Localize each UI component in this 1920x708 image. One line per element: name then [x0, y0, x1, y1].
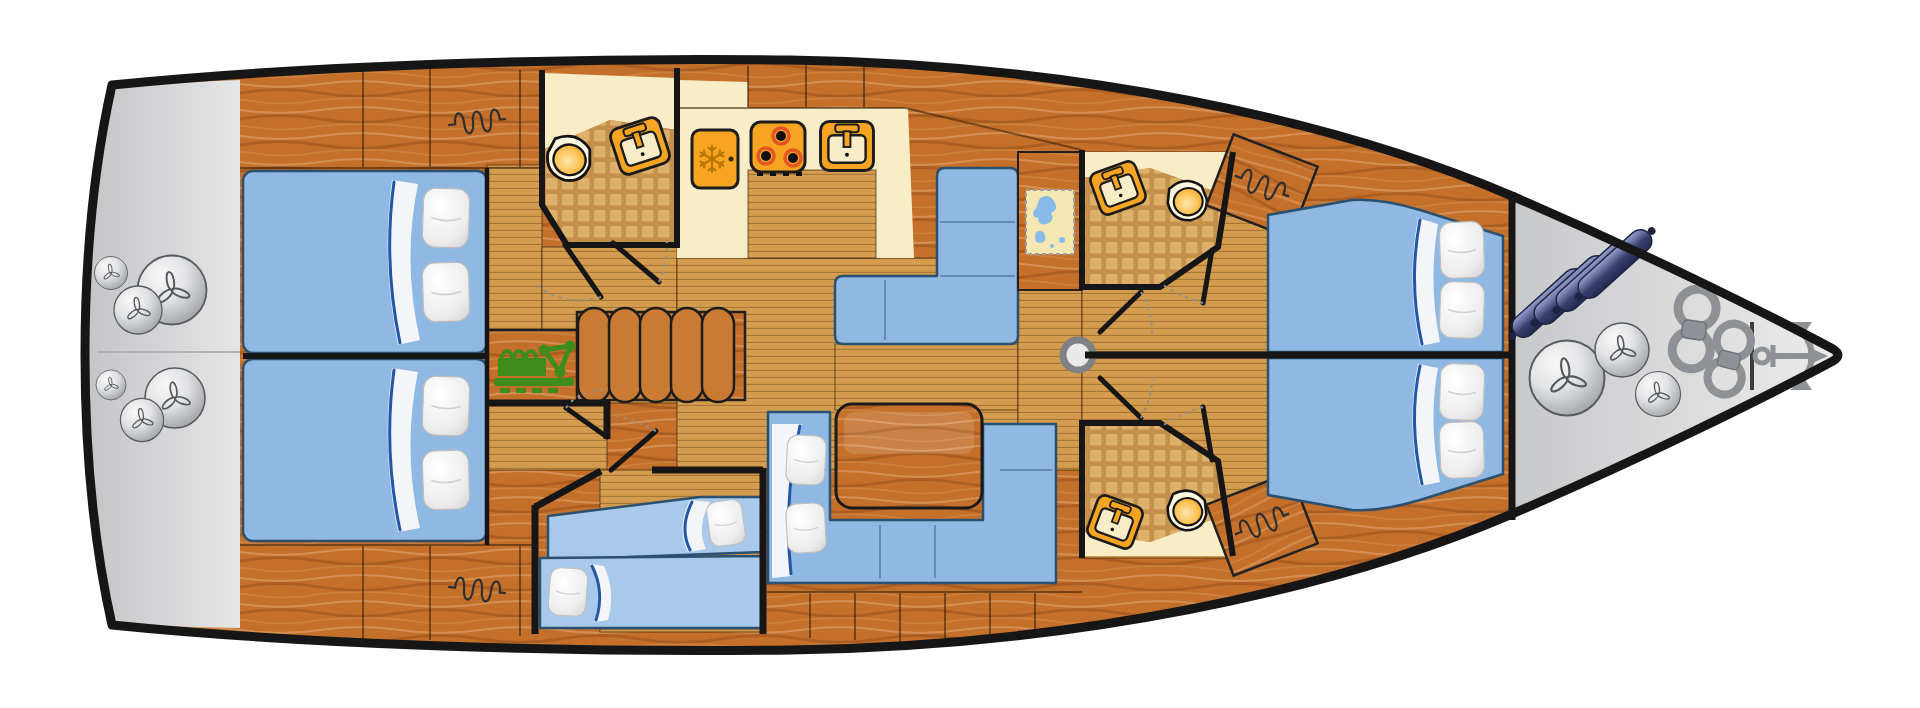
folding-table-leaf	[671, 308, 703, 402]
chart-table	[1018, 152, 1082, 290]
pillow	[422, 450, 470, 510]
mid-cabin-entry-floor	[487, 403, 607, 470]
pillow	[1439, 421, 1485, 479]
ball-fender	[96, 370, 126, 400]
salon-floor-2	[835, 344, 1018, 410]
galley-sink-icon	[821, 122, 874, 171]
salon-dinette	[768, 404, 1056, 583]
ball-fender	[1636, 372, 1681, 417]
swim-platform	[85, 80, 240, 628]
aft-cabin-starboard	[243, 359, 487, 541]
pillow	[785, 434, 826, 485]
pillow	[422, 376, 470, 436]
pillow	[1439, 281, 1485, 339]
fridge-handle	[729, 157, 734, 162]
folding-table-leaf	[702, 308, 734, 402]
stove	[751, 122, 805, 176]
ball-fender	[95, 257, 128, 290]
chart-map-icon	[1026, 190, 1074, 254]
floor-plan-canvas	[0, 0, 1920, 708]
ball-fender	[1530, 341, 1605, 416]
folding-table-leaf	[609, 308, 641, 402]
fridge	[692, 130, 738, 188]
table-sheen	[844, 412, 974, 454]
aft-head	[542, 73, 677, 243]
forward-cabin-port	[1268, 200, 1503, 352]
pillow	[705, 498, 746, 547]
pillow	[548, 567, 589, 617]
pillow	[785, 502, 826, 553]
mid-cabin	[540, 497, 763, 628]
pillow	[1439, 221, 1485, 279]
galley-floor	[748, 170, 876, 258]
pillow	[422, 188, 470, 248]
yacht-floor-plan	[0, 0, 1920, 708]
folding-table-leaf	[578, 308, 610, 402]
ball-fender	[1595, 323, 1649, 377]
folding-table-leaf	[640, 308, 672, 402]
ball-fender	[120, 398, 163, 441]
pillow	[422, 262, 470, 322]
aft-cabin-port	[243, 171, 487, 353]
ball-fender	[114, 286, 162, 334]
pillow	[1439, 363, 1485, 421]
